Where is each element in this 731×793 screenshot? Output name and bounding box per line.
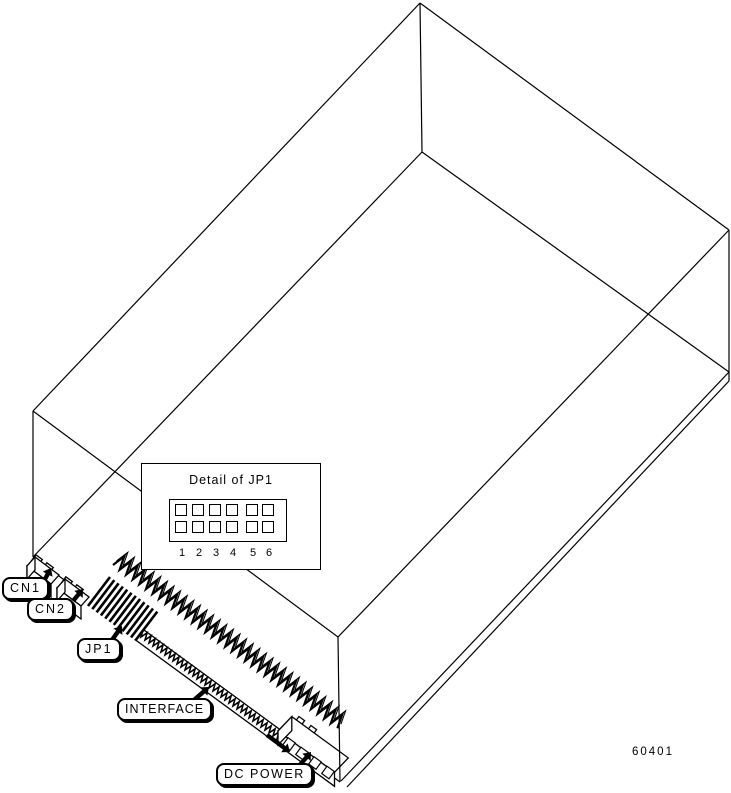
jumper-pin: [175, 521, 187, 533]
interface-label: INTERFACE: [117, 698, 212, 721]
jumper-pin: [192, 521, 204, 533]
jumper-pin: [192, 504, 204, 516]
jumper-pin: [226, 504, 238, 516]
cn1-label: CN1: [2, 577, 49, 600]
drive-wireframe: [33, 3, 729, 787]
jumper-pin: [262, 504, 274, 516]
jumper-pin: [226, 521, 238, 533]
pin-number: 2: [193, 547, 205, 559]
pin-number: 6: [263, 547, 275, 559]
jp1-label: JP1: [77, 638, 121, 661]
jumper-pin: [262, 521, 274, 533]
diagram-canvas: [0, 0, 731, 793]
bottom-rim: [341, 372, 729, 787]
pin-number: 4: [227, 547, 239, 559]
figure-number: 60401: [632, 746, 674, 758]
jumper-pin: [246, 504, 258, 516]
jp1-detail-inset: Detail of JP1 1 2 3 4 5 6: [141, 463, 321, 570]
jumper-pin-grid: [169, 499, 287, 542]
inset-title: Detail of JP1: [142, 473, 320, 487]
pin-number: 3: [210, 547, 222, 559]
dc-power-label: DC POWER: [216, 763, 313, 786]
jumper-pin: [246, 521, 258, 533]
jumper-pin: [209, 521, 221, 533]
pin-number: 5: [247, 547, 259, 559]
jumper-pin: [209, 504, 221, 516]
hard-drive-connector-diagram: CN1 CN2 JP1 INTERFACE DC POWER Detail of…: [0, 0, 731, 793]
pin-number: 1: [176, 547, 188, 559]
jumper-pin: [175, 504, 187, 516]
cn2-label: CN2: [27, 598, 74, 621]
